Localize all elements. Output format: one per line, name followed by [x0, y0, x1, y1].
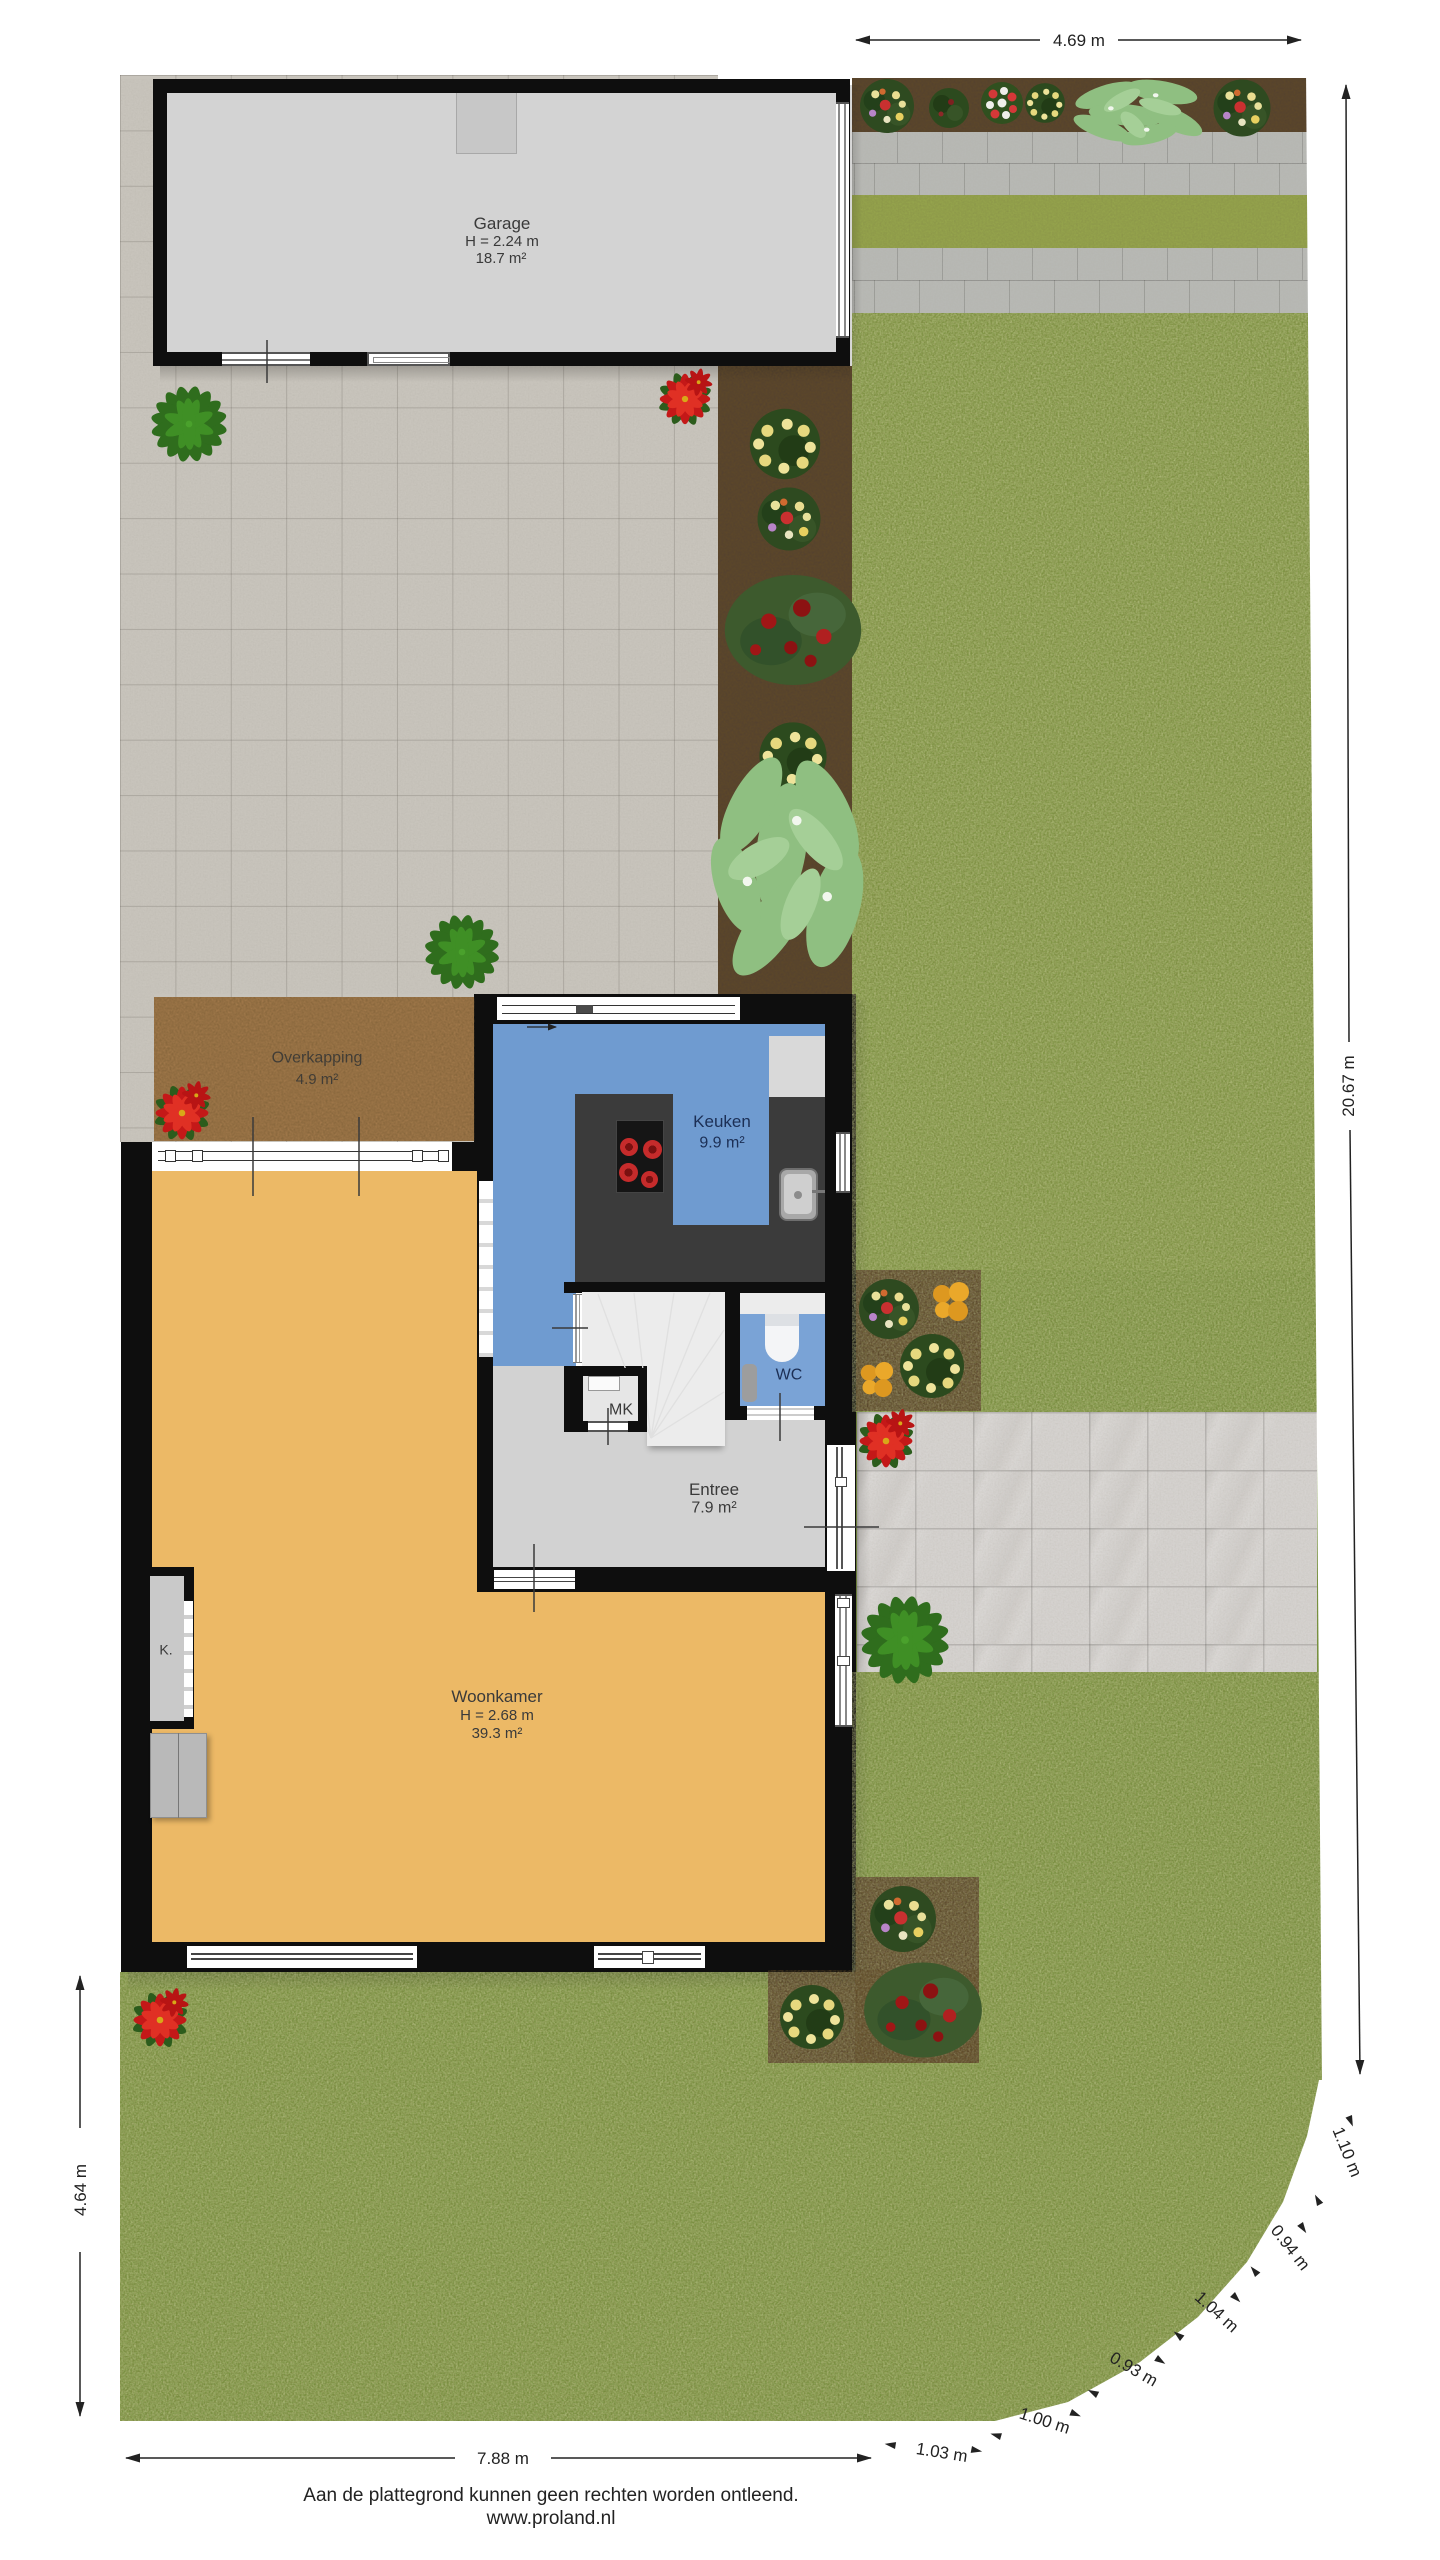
svg-text:7.88 m: 7.88 m — [477, 2449, 529, 2468]
svg-text:20.67 m: 20.67 m — [1339, 1055, 1358, 1116]
svg-text:4.69 m: 4.69 m — [1053, 31, 1105, 50]
svg-text:1.03 m: 1.03 m — [915, 2439, 969, 2466]
svg-text:4.64 m: 4.64 m — [71, 2164, 90, 2216]
